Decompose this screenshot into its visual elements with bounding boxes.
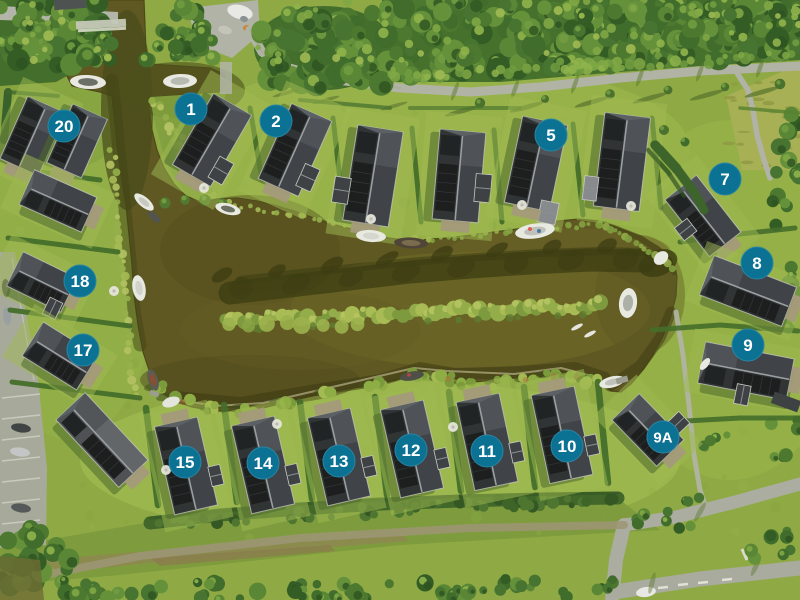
svg-text:7: 7	[720, 170, 729, 189]
svg-text:15: 15	[176, 453, 195, 472]
svg-text:1: 1	[186, 100, 195, 119]
svg-text:10: 10	[558, 437, 577, 456]
svg-text:20: 20	[55, 117, 74, 136]
svg-text:5: 5	[546, 126, 555, 145]
svg-text:18: 18	[71, 272, 90, 291]
svg-text:17: 17	[74, 341, 93, 360]
svg-text:2: 2	[271, 112, 280, 131]
svg-text:12: 12	[402, 441, 421, 460]
svg-text:9: 9	[743, 336, 752, 355]
svg-text:9A: 9A	[653, 429, 672, 446]
svg-text:8: 8	[752, 254, 761, 273]
svg-text:14: 14	[254, 454, 273, 473]
svg-text:13: 13	[330, 452, 349, 471]
svg-text:11: 11	[478, 442, 496, 461]
